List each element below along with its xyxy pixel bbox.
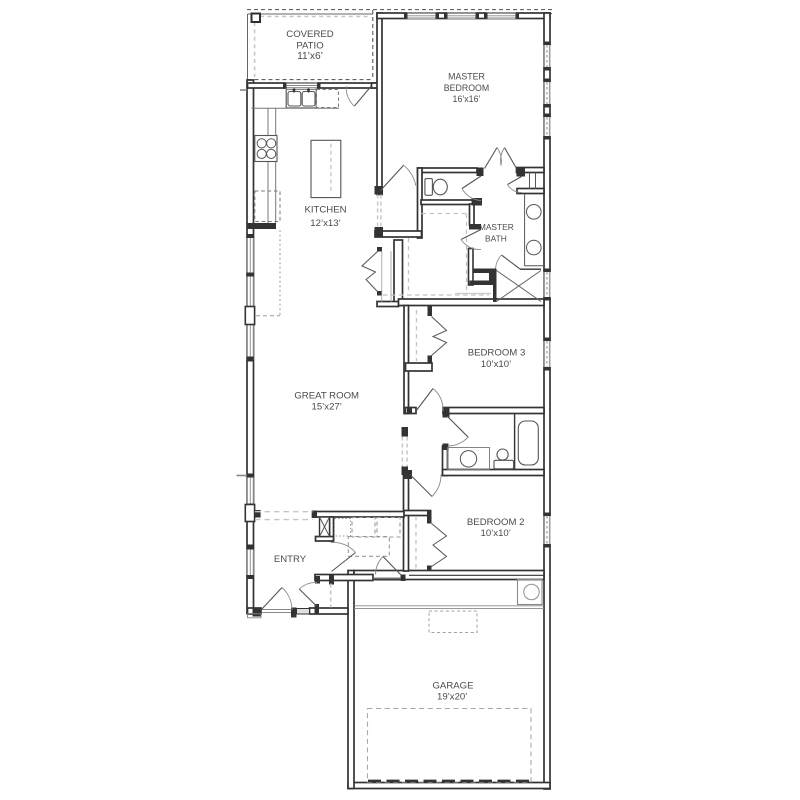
svg-text:12’x13’: 12’x13’	[310, 218, 340, 229]
svg-text:GARAGE: GARAGE	[432, 680, 473, 691]
svg-text:GREAT ROOM: GREAT ROOM	[294, 390, 359, 401]
svg-text:16’x16’: 16’x16’	[453, 94, 481, 104]
svg-text:ENTRY: ENTRY	[274, 554, 307, 565]
svg-text:BEDROOM: BEDROOM	[444, 83, 489, 93]
svg-text:11’x6’: 11’x6’	[297, 51, 323, 62]
svg-text:BEDROOM 3: BEDROOM 3	[468, 348, 526, 359]
svg-text:10’x10’: 10’x10’	[481, 359, 511, 370]
svg-text:MASTER: MASTER	[479, 222, 514, 232]
svg-text:KITCHEN: KITCHEN	[304, 205, 346, 216]
svg-text:BATH: BATH	[485, 234, 507, 244]
svg-text:19’x20’: 19’x20’	[437, 692, 467, 703]
svg-text:10’x10’: 10’x10’	[480, 528, 510, 539]
svg-text:BEDROOM 2: BEDROOM 2	[467, 517, 525, 528]
svg-text:PATIO: PATIO	[296, 41, 323, 52]
svg-text:MASTER: MASTER	[448, 72, 485, 82]
svg-text:COVERED: COVERED	[286, 29, 334, 40]
svg-text:15’x27’: 15’x27’	[311, 402, 341, 413]
